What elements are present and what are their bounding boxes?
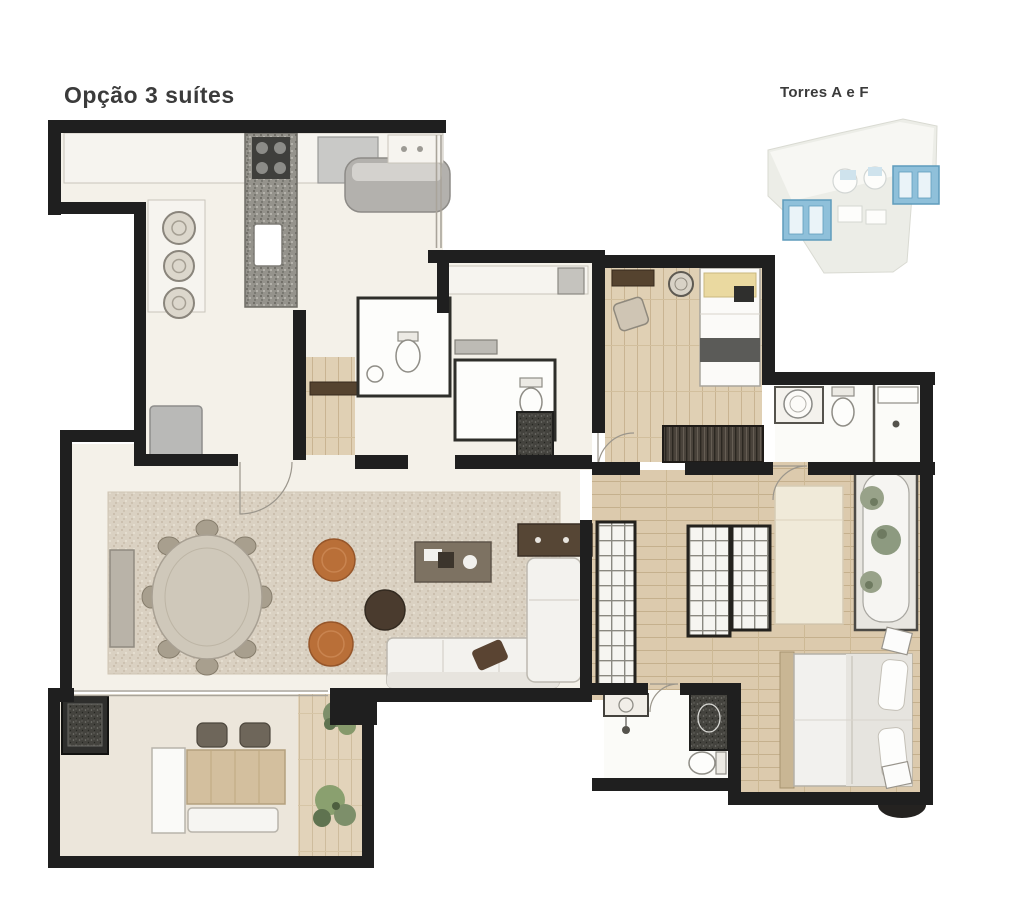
wardrobe xyxy=(663,426,763,462)
round-basin xyxy=(784,390,812,418)
closet xyxy=(732,526,770,630)
counter-sink xyxy=(254,224,282,266)
tower-f-highlight xyxy=(893,166,939,204)
kitchen-sink-glare xyxy=(352,163,442,181)
toilet xyxy=(832,387,854,426)
chaise xyxy=(527,558,581,682)
pouf-orange xyxy=(309,622,353,666)
faucet-dot xyxy=(417,146,423,152)
terrace-cabinet xyxy=(152,748,185,833)
faucet-dot xyxy=(401,146,407,152)
nightstand xyxy=(882,762,912,789)
kitchen-cabinet xyxy=(150,406,202,458)
living-dining xyxy=(108,492,592,688)
coffee-table xyxy=(415,542,491,582)
shower-shelf xyxy=(878,387,918,403)
tub-plant xyxy=(871,525,901,555)
lavabo-sink xyxy=(367,366,383,382)
site-building-outline xyxy=(838,206,862,222)
tub-plant xyxy=(860,486,884,510)
sideboard xyxy=(110,550,134,647)
terrace-table xyxy=(187,750,285,804)
vanity-counter xyxy=(455,340,497,354)
side-table xyxy=(365,590,405,630)
shower-box xyxy=(690,692,728,750)
stove-burners xyxy=(163,212,195,318)
floorplan-page: Opção 3 suítes Torres A e F xyxy=(0,0,1024,902)
terrace-bench xyxy=(188,808,278,832)
shower-box xyxy=(517,412,553,458)
site-map xyxy=(768,119,939,273)
master-wardrobe-block xyxy=(775,486,843,624)
single-bed xyxy=(700,268,760,386)
cooktop-grid xyxy=(252,137,290,179)
site-building-hint xyxy=(868,167,882,176)
pouf-orange xyxy=(313,539,355,581)
bbq-grill xyxy=(62,696,108,754)
dining-set xyxy=(142,520,272,675)
vanity-counter xyxy=(604,694,648,716)
terrace-chair xyxy=(197,723,227,747)
shower-head xyxy=(893,421,900,428)
pendant-dot xyxy=(622,726,630,734)
toilet xyxy=(689,752,726,774)
washer xyxy=(558,268,584,294)
site-building-hint xyxy=(840,170,856,180)
terrace-chair xyxy=(240,723,270,747)
bathtub xyxy=(855,465,917,630)
floorplan-graphic xyxy=(0,0,1024,902)
tower-a-highlight xyxy=(783,200,831,240)
dining-table xyxy=(152,535,262,659)
kitchen-counter-right xyxy=(388,135,443,163)
closet xyxy=(597,522,635,690)
closet xyxy=(688,526,730,636)
toilet xyxy=(396,332,420,372)
toilet xyxy=(520,378,542,416)
pillow xyxy=(877,659,908,711)
site-building-outline xyxy=(866,210,886,224)
desk xyxy=(612,270,654,286)
mirror xyxy=(669,272,693,296)
hall-floor xyxy=(306,357,355,455)
